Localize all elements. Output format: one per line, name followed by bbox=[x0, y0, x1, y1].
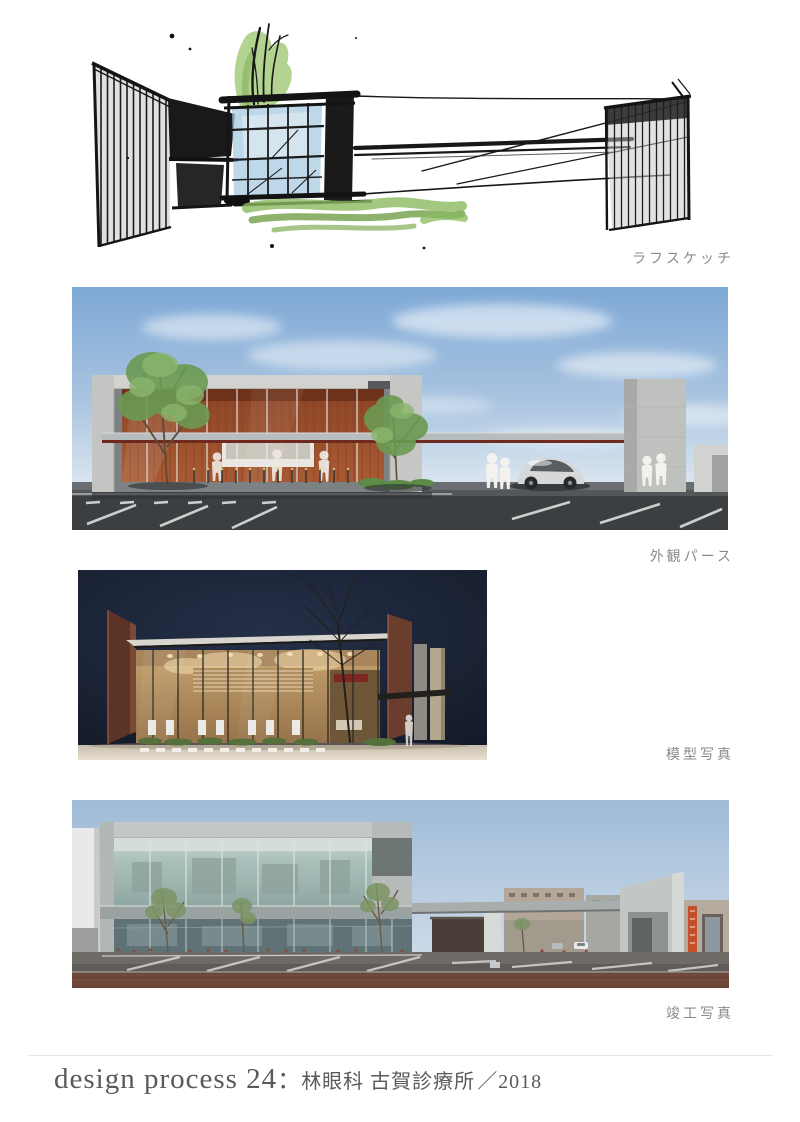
completion-photo-image bbox=[72, 800, 729, 988]
photo-sign-orange bbox=[688, 906, 697, 952]
photo-main-building bbox=[100, 822, 412, 952]
rough-sketch-image bbox=[72, 8, 732, 253]
completion-photo-figure bbox=[72, 800, 729, 988]
exterior-perspective-image bbox=[72, 287, 728, 530]
sketch-glass-box bbox=[222, 92, 372, 206]
caption-model-photo: 模型写真 bbox=[666, 744, 734, 764]
footer-separator: ： bbox=[277, 1068, 301, 1094]
caption-completion-photo: 竣工写真 bbox=[666, 1003, 734, 1023]
rough-sketch-figure bbox=[72, 8, 732, 253]
footer-series-title: design process 24 bbox=[54, 1063, 277, 1095]
caption-rough-sketch: ラフスケッチ bbox=[632, 248, 734, 268]
footer-project-name: 林眼科 古賀診療所 bbox=[301, 1071, 475, 1093]
model-photo-image bbox=[78, 570, 487, 760]
sketch-left-wall bbox=[92, 63, 173, 247]
photo-parking-lot bbox=[72, 952, 729, 988]
exterior-perspective-figure bbox=[72, 287, 728, 530]
sketch-ground-green bbox=[247, 202, 464, 230]
caption-exterior-perspective: 外観パース bbox=[650, 546, 734, 566]
portfolio-page: ラフスケッチ bbox=[0, 0, 800, 1122]
footer-divider bbox=[28, 1055, 773, 1056]
footer-credit: design process 24：林眼科 古賀診療所／2018 bbox=[54, 1060, 542, 1096]
model-left-fin bbox=[108, 610, 130, 744]
sketch-right-wall bbox=[604, 79, 691, 230]
footer-year: ／2018 bbox=[477, 1071, 542, 1093]
model-photo-figure bbox=[78, 570, 487, 760]
